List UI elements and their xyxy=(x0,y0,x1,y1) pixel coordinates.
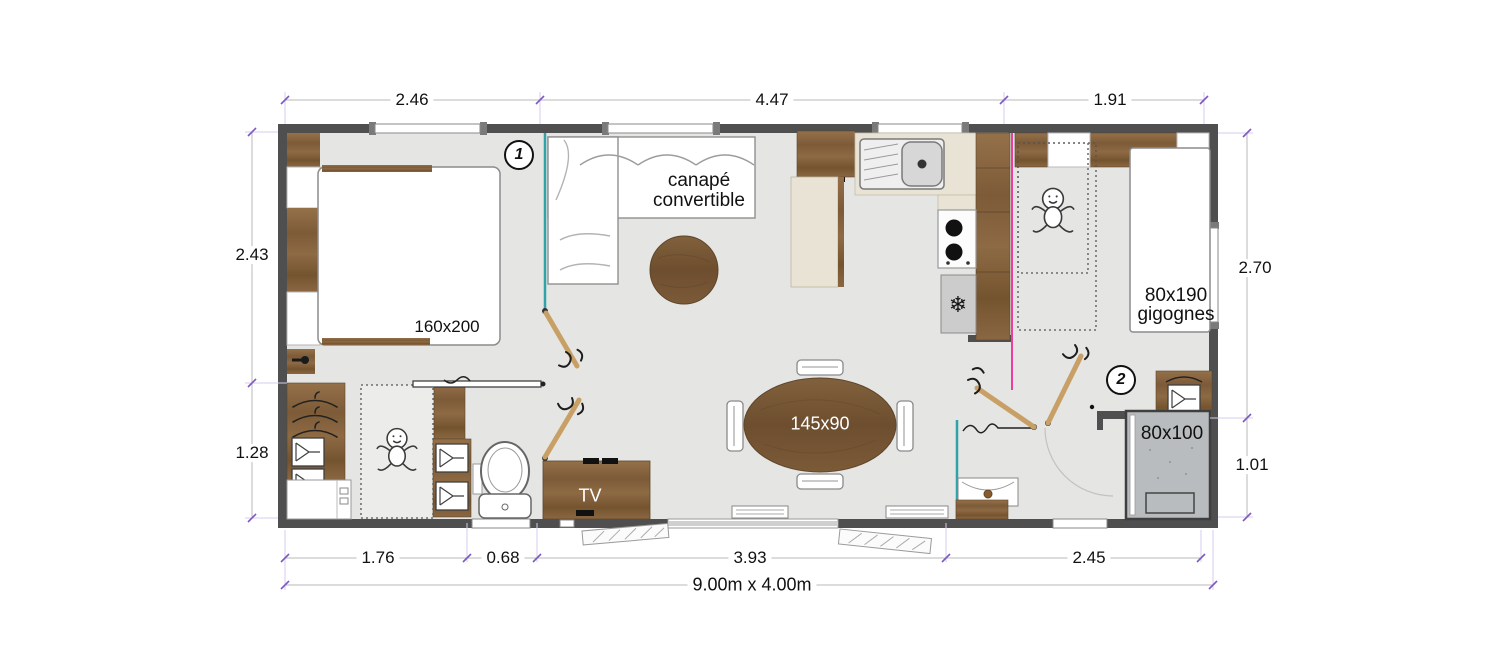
single-beds-size-label: 80x190 xyxy=(1145,286,1207,306)
shower-label: 80x100 xyxy=(1141,424,1203,444)
dim-label-top-1: 4.47 xyxy=(750,91,793,109)
dim-label-bottom-0: 1.76 xyxy=(356,549,399,567)
dim-label-top-2: 1.91 xyxy=(1088,91,1131,109)
double-bed-label: 160x200 xyxy=(414,318,479,336)
chair-left xyxy=(727,401,743,451)
fridge: ❄ xyxy=(941,275,976,333)
sliding-panel-right xyxy=(838,529,931,554)
bedroom1-badge: 1 xyxy=(504,140,534,170)
dining-table-label: 145x90 xyxy=(790,415,849,434)
single-beds-type-label: gigognes xyxy=(1137,305,1214,325)
dim-label-bottom-2: 3.93 xyxy=(728,549,771,567)
window-bedroom1 xyxy=(375,124,480,133)
door-leaf-wc xyxy=(413,381,541,387)
chair-right xyxy=(897,401,913,451)
dim-label-bottom-1: 0.68 xyxy=(481,549,524,567)
coat-rack xyxy=(287,349,315,374)
dim-label-top-0: 2.46 xyxy=(390,91,433,109)
sofa-label: canapé convertible xyxy=(647,171,751,211)
dim-label-right-1: 1.01 xyxy=(1230,456,1273,474)
dim-label-left-0: 2.43 xyxy=(230,246,273,264)
dim-label-bottom-3: 2.45 xyxy=(1067,549,1110,567)
coffee-table xyxy=(650,236,718,304)
linen-shelf-icon xyxy=(292,438,324,466)
bedroom2-badge: 2 xyxy=(1106,365,1136,395)
linen-shelf-icon xyxy=(1168,385,1200,413)
dressing-column xyxy=(433,383,471,517)
kitchen-tall-unit xyxy=(976,133,1010,340)
threshold-mark xyxy=(560,520,574,527)
kitchen-sink xyxy=(860,139,944,189)
window-wc xyxy=(472,519,530,528)
dim-label-left-1: 1.28 xyxy=(230,444,273,462)
door-stop-dot xyxy=(1090,405,1094,409)
window-kitchen xyxy=(878,124,962,133)
window-bathroom xyxy=(1053,519,1107,528)
hob xyxy=(938,210,976,268)
fridge-snowflake-icon: ❄ xyxy=(949,292,967,317)
overall-size-label: 9.00m x 4.00m xyxy=(687,576,816,595)
floorplan-page: ❄ xyxy=(0,0,1499,651)
dim-label-right-0: 2.70 xyxy=(1233,259,1276,277)
window-living xyxy=(608,124,713,133)
bedroom1-wardrobe xyxy=(287,133,320,345)
linen-shelf-icon xyxy=(436,444,468,472)
linen-shelf-icon xyxy=(436,482,468,510)
tv-label: TV xyxy=(578,487,601,506)
dressing-cabinet xyxy=(287,480,351,519)
